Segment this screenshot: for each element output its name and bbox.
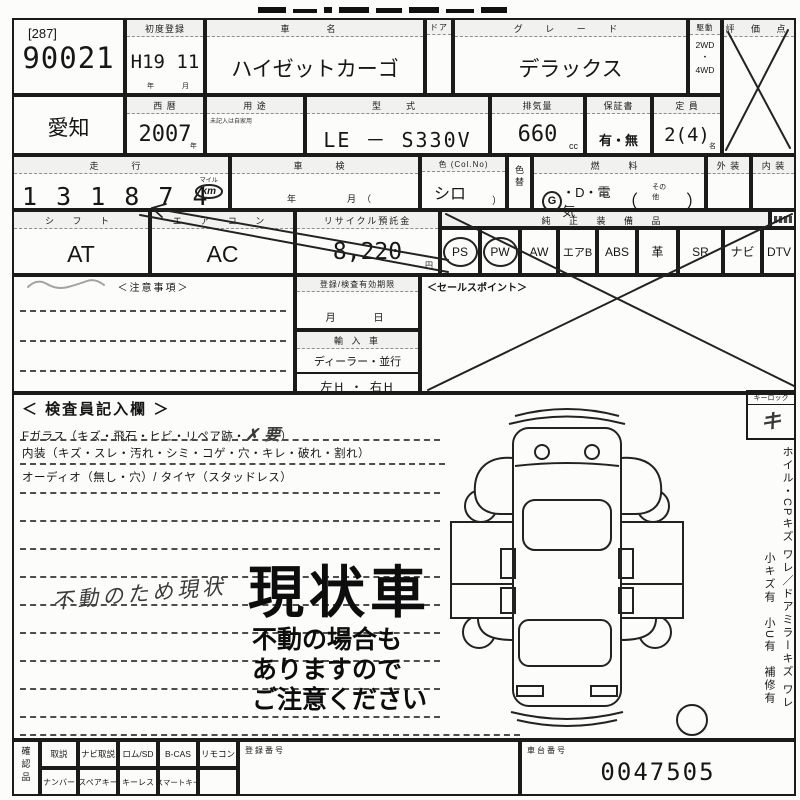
lot-cell: [287] 90021 <box>12 18 125 95</box>
mileage-value: 1 3 1 8 7 4 <box>22 182 210 211</box>
car-name-label: 車 名 <box>207 20 423 37</box>
score-cell: 評 価 点 <box>722 18 796 155</box>
bottom-empty-cell <box>198 768 238 796</box>
dashed-line <box>20 340 286 342</box>
bottom-remote: リモコン <box>198 740 238 768</box>
import-handle: 左H ・ 右H <box>297 374 418 395</box>
recycle-value: 8,220 <box>297 239 438 265</box>
equip-pw: PW <box>480 228 520 275</box>
use-label: 用 途 <box>207 97 303 114</box>
model-label: 型 式 <box>307 97 488 114</box>
illegible-smudge <box>774 216 792 223</box>
use-cell: 用 途 未記入は自家用 <box>205 95 305 155</box>
inspector-audio-line: オーディオ（無し・穴）/ タイヤ（スタッドレス） <box>22 469 292 485</box>
warranty-value: 有・無 <box>587 130 650 149</box>
grade-value: デラックス <box>455 53 686 83</box>
grade-cell: グ レ ー ド デラックス <box>453 18 688 95</box>
prefecture-value: 愛知 <box>14 112 123 142</box>
bottom-rom-sd: ロム/SD <box>118 740 158 768</box>
fuel-label: 燃 料 <box>534 157 704 174</box>
color-change-label: 色替 <box>513 165 526 189</box>
fuel-other: その他 <box>652 182 672 202</box>
displacement-cell: 排気量 660 cc <box>490 95 585 155</box>
first-registration-cell: 初度登録 H19 11 年 月 <box>125 18 205 95</box>
drive-dot: ・ <box>690 51 720 63</box>
inspector-title: ＜ 検査員記入欄 ＞ <box>22 398 170 419</box>
import-box: 輸 入 車 ディーラー・並行 左H ・ 右H <box>295 330 420 393</box>
dashed-line <box>20 492 440 494</box>
stamp-line3: ご注意ください <box>252 680 427 716</box>
warranty-cell: 保証書 有・無 <box>585 95 652 155</box>
color-paren: ） <box>492 192 502 207</box>
car-name-cell: 車 名 ハイゼットカーゴ <box>205 18 425 95</box>
expiry-box: 登録/検査有効期限 月 日 <box>295 275 420 330</box>
drive-4wd: 4WD <box>690 64 720 76</box>
shift-cell: シ フ ト AT <box>12 210 150 275</box>
right-notes-col2: 小キズ有 小U有 補修有 <box>761 552 777 738</box>
recycle-label: リサイクル預託金 <box>297 212 438 229</box>
chassis-number-label: 車台番号 <box>527 745 794 756</box>
dashed-line <box>20 310 286 312</box>
notes-label: ＜注意事項＞ <box>14 277 293 294</box>
first-reg-year-unit: 年 <box>147 81 154 91</box>
chassis-number-value: 0047505 <box>522 758 794 786</box>
interior-cell: 内 装 <box>751 155 796 210</box>
shaken-cell: 車 検 年 月（ <box>230 155 420 210</box>
displacement-unit: cc <box>569 141 578 151</box>
import-dealer: ディーラー・並行 <box>297 349 418 374</box>
fglass-mark-handwritten: ✗ 要 <box>245 427 280 444</box>
aircon-label: エ ア コ ン <box>152 212 293 229</box>
equip-ps: PS <box>440 228 480 275</box>
dashed-line <box>20 463 445 465</box>
equip-sr: SR <box>678 228 723 275</box>
aircon-cell: エ ア コ ン AC <box>150 210 295 275</box>
bottom-number-plate: ナンバー <box>40 768 78 796</box>
year-cell: 西 暦 2007 年 <box>125 95 205 155</box>
confirm-items-label: 確認品 <box>20 746 33 785</box>
mileage-unit-badge: マイル km <box>195 175 223 199</box>
page-title-cutoff <box>258 0 558 13</box>
bottom-bcas: B-CAS <box>158 740 198 768</box>
door-label: ドア <box>427 20 451 35</box>
model-cell: 型 式 LE － S330V <box>305 95 490 155</box>
color-cell: 色 (Col.No) シロ ） <box>420 155 507 210</box>
interior-label: 内 装 <box>753 157 794 174</box>
color-change-cell: 色替 <box>507 155 532 210</box>
confirm-items-cell: 確認品 <box>12 740 40 796</box>
equip-aw: AW <box>520 228 558 275</box>
capacity-label: 定 員 <box>654 97 720 114</box>
notes-box: ＜注意事項＞ <box>12 275 295 393</box>
car-name-value: ハイゼットカーゴ <box>207 53 423 83</box>
equipment-header-end <box>770 210 796 228</box>
fglass-close: ） <box>281 431 293 443</box>
exterior-cell: 外 装 <box>706 155 751 210</box>
fuel-gasoline: G <box>542 191 562 212</box>
recycle-unit: 円 <box>425 260 433 271</box>
inspector-fglass-line: Fガラス（キズ・飛石・ヒビ・リペア跡・✗ 要） <box>22 421 293 445</box>
equip-abs: ABS <box>597 228 637 275</box>
registration-number-label: 登録番号 <box>245 745 518 756</box>
equip-leather: 革 <box>637 228 678 275</box>
right-notes-col1: ホイル・CPキズ ワレ／ドアミラーキズ ワレ <box>779 446 795 736</box>
shift-label: シ フ ト <box>14 212 148 229</box>
km-oval: km <box>195 184 223 199</box>
displacement-label: 排気量 <box>492 97 583 114</box>
equip-ps-circled: PS <box>443 237 478 267</box>
mile-label: マイル <box>195 175 223 184</box>
import-label: 輸 入 車 <box>297 332 418 349</box>
bottom-keyless: キーレス <box>118 768 158 796</box>
expiry-value: 月 日 <box>297 309 418 324</box>
inspector-interior-line: 内装（キズ・スレ・汚れ・シミ・コゲ・穴・キレ・破れ・割れ） <box>22 445 370 461</box>
drive-cell: 駆動 2WD ・ 4WD <box>688 18 722 95</box>
score-label: 評 価 点 <box>724 20 794 37</box>
auction-sheet: [287] 90021 初度登録 H19 11 年 月 車 名 ハイゼットカーゴ… <box>0 0 800 800</box>
dashed-line <box>20 716 440 718</box>
prefecture-cell: 愛知 <box>12 95 125 155</box>
equip-navi: ナビ <box>723 228 762 275</box>
lot-bracket: [287] <box>28 26 123 41</box>
sales-point-box: ＜セールスポイント＞ <box>420 275 796 393</box>
expiry-label: 登録/検査有効期限 <box>297 277 418 292</box>
car-top-view-diagram <box>445 402 745 740</box>
warranty-label: 保証書 <box>587 97 650 114</box>
dashed-line <box>20 520 440 522</box>
lot-number: 90021 <box>14 41 123 75</box>
fuel-cell: 燃 料 G・D・電気（その他） <box>532 155 706 210</box>
keylock-label: キーロック <box>748 392 794 405</box>
bottom-spare-key: スペアキー <box>78 768 118 796</box>
mileage-label: 走 行 <box>14 157 228 174</box>
sales-point-label: ＜セールスポイント＞ <box>422 277 794 294</box>
exterior-label: 外 装 <box>708 157 749 174</box>
year-label: 西 暦 <box>127 97 203 114</box>
first-registration-label: 初度登録 <box>127 20 203 37</box>
door-cell: ドア <box>425 18 453 95</box>
chassis-number-cell: 車台番号 0047505 <box>520 740 796 796</box>
use-note: 未記入は自家用 <box>210 116 303 125</box>
first-registration-value: H19 11 <box>127 51 203 73</box>
grade-label: グ レ ー ド <box>455 20 686 37</box>
recycle-cell: リサイクル預託金 8,220 円 <box>295 210 440 275</box>
aircon-value: AC <box>152 241 293 268</box>
shaken-label: 車 検 <box>232 157 418 174</box>
bottom-smart-key: スマートキー <box>158 768 198 796</box>
equip-airbag: エアB <box>558 228 597 275</box>
keylock-value-handwritten: キ <box>748 405 794 434</box>
drive-2wd: 2WD <box>690 39 720 51</box>
registration-number-cell: 登録番号 <box>238 740 520 796</box>
shaken-bottom: 年 月（ <box>287 192 377 205</box>
year-unit: 年 <box>190 141 197 151</box>
dashed-line <box>20 439 440 441</box>
drive-label: 駆動 <box>690 20 720 35</box>
fglass-text: Fガラス（キズ・飛石・ヒビ・リペア跡・ <box>22 431 245 443</box>
capacity-cell: 定 員 2(4) 名 <box>652 95 722 155</box>
shift-value: AT <box>14 241 148 268</box>
equip-pw-circled: PW <box>483 237 518 267</box>
equipment-label: 純 正 装 備 品 <box>442 212 768 227</box>
dashed-line <box>20 370 286 372</box>
bottom-manual: 取説 <box>40 740 78 768</box>
model-value: LE － S330V <box>307 124 488 153</box>
color-label: 色 (Col.No) <box>422 157 505 172</box>
keylock-box: キーロック キ <box>746 390 796 440</box>
equipment-header: 純 正 装 備 品 <box>440 210 770 228</box>
mileage-cell: 走 行 1 3 1 8 7 4 マイル km <box>12 155 230 210</box>
bottom-navi-manual: ナビ取説 <box>78 740 118 768</box>
capacity-unit: 名 <box>709 141 716 151</box>
stamp-genjousha: 現状車 <box>248 548 431 629</box>
first-reg-month-unit: 月 <box>182 81 189 91</box>
equip-dtv: DTV <box>762 228 796 275</box>
